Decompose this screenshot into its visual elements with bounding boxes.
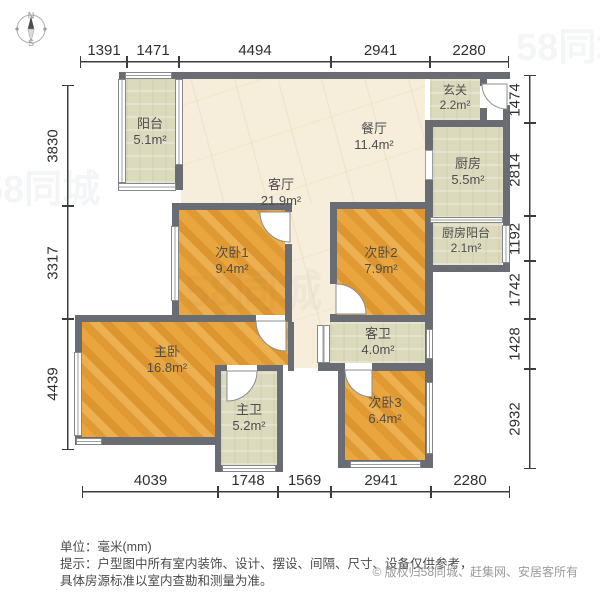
- entry-door-arc: [482, 84, 507, 109]
- compass-tick-east: [43, 27, 47, 31]
- label-entry: 玄关2.2m²: [440, 83, 471, 113]
- floorplan: 阳台5.1m² 客厅21.9m² 餐厅11.4m² 玄关2.2m² 厨房5.5m…: [0, 0, 600, 600]
- room-area: 4.0m²: [361, 342, 394, 358]
- label-bedroom2: 次卧27.9m²: [364, 245, 397, 277]
- bedroom1-door-arc: [260, 212, 290, 242]
- floorplan-page: { "compass": {"north": "N", "south": "S"…: [0, 0, 600, 600]
- master-door-arc: [256, 321, 286, 351]
- room-area: 7.9m²: [364, 261, 397, 277]
- room-name: 厨房阳台: [442, 226, 490, 241]
- room-name: 次卧2: [364, 245, 397, 261]
- room-name: 餐厅: [354, 121, 394, 137]
- room-area: 11.4m²: [354, 137, 394, 153]
- room-name: 阳台: [133, 116, 166, 132]
- room-area: 2.2m²: [440, 98, 471, 113]
- compass-north-label: N: [28, 11, 35, 21]
- bedroom3-door-arc: [345, 370, 372, 397]
- master-bath-door-arc: [227, 371, 257, 401]
- room-area: 2.1m²: [442, 241, 490, 256]
- room-name: 次卧1: [215, 245, 248, 261]
- room-area: 16.8m²: [147, 360, 187, 376]
- compass-tick-west: [15, 27, 19, 31]
- bedroom2-door-arc: [336, 284, 366, 314]
- label-kitchen-balcony: 厨房阳台2.1m²: [442, 226, 490, 256]
- door-arcs: [0, 0, 600, 600]
- room-name: 客厅: [261, 177, 301, 193]
- room-name: 主卫: [232, 402, 265, 418]
- compass: N S: [8, 6, 54, 52]
- label-master: 主卧16.8m²: [147, 344, 187, 376]
- room-area: 21.9m²: [261, 193, 301, 209]
- label-living: 客厅21.9m²: [261, 177, 301, 209]
- room-name: 厨房: [451, 156, 484, 172]
- room-area: 5.5m²: [451, 172, 484, 188]
- room-name: 玄关: [440, 83, 471, 98]
- label-guest-bath: 客卫4.0m²: [361, 326, 394, 358]
- room-name: 次卧3: [368, 395, 401, 411]
- label-balcony: 阳台5.1m²: [133, 116, 166, 148]
- compass-south-label: S: [28, 38, 34, 48]
- room-area: 5.1m²: [133, 132, 166, 148]
- label-master-bath: 主卫5.2m²: [232, 402, 265, 434]
- label-dining: 餐厅11.4m²: [354, 121, 394, 153]
- room-name: 客卫: [361, 326, 394, 342]
- room-area: 9.4m²: [215, 261, 248, 277]
- room-name: 主卧: [147, 344, 187, 360]
- room-area: 6.4m²: [368, 411, 401, 427]
- room-area: 5.2m²: [232, 418, 265, 434]
- label-bedroom3: 次卧36.4m²: [368, 395, 401, 427]
- label-kitchen: 厨房5.5m²: [451, 156, 484, 188]
- label-bedroom1: 次卧19.4m²: [215, 245, 248, 277]
